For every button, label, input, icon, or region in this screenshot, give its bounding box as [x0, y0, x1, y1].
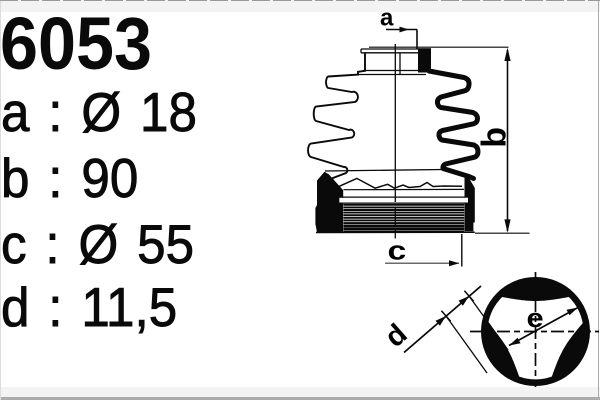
svg-text:a: a: [380, 5, 394, 32]
svg-text:e: e: [527, 304, 544, 334]
svg-text:b: b: [476, 127, 514, 148]
svg-text:c: c: [388, 236, 407, 266]
